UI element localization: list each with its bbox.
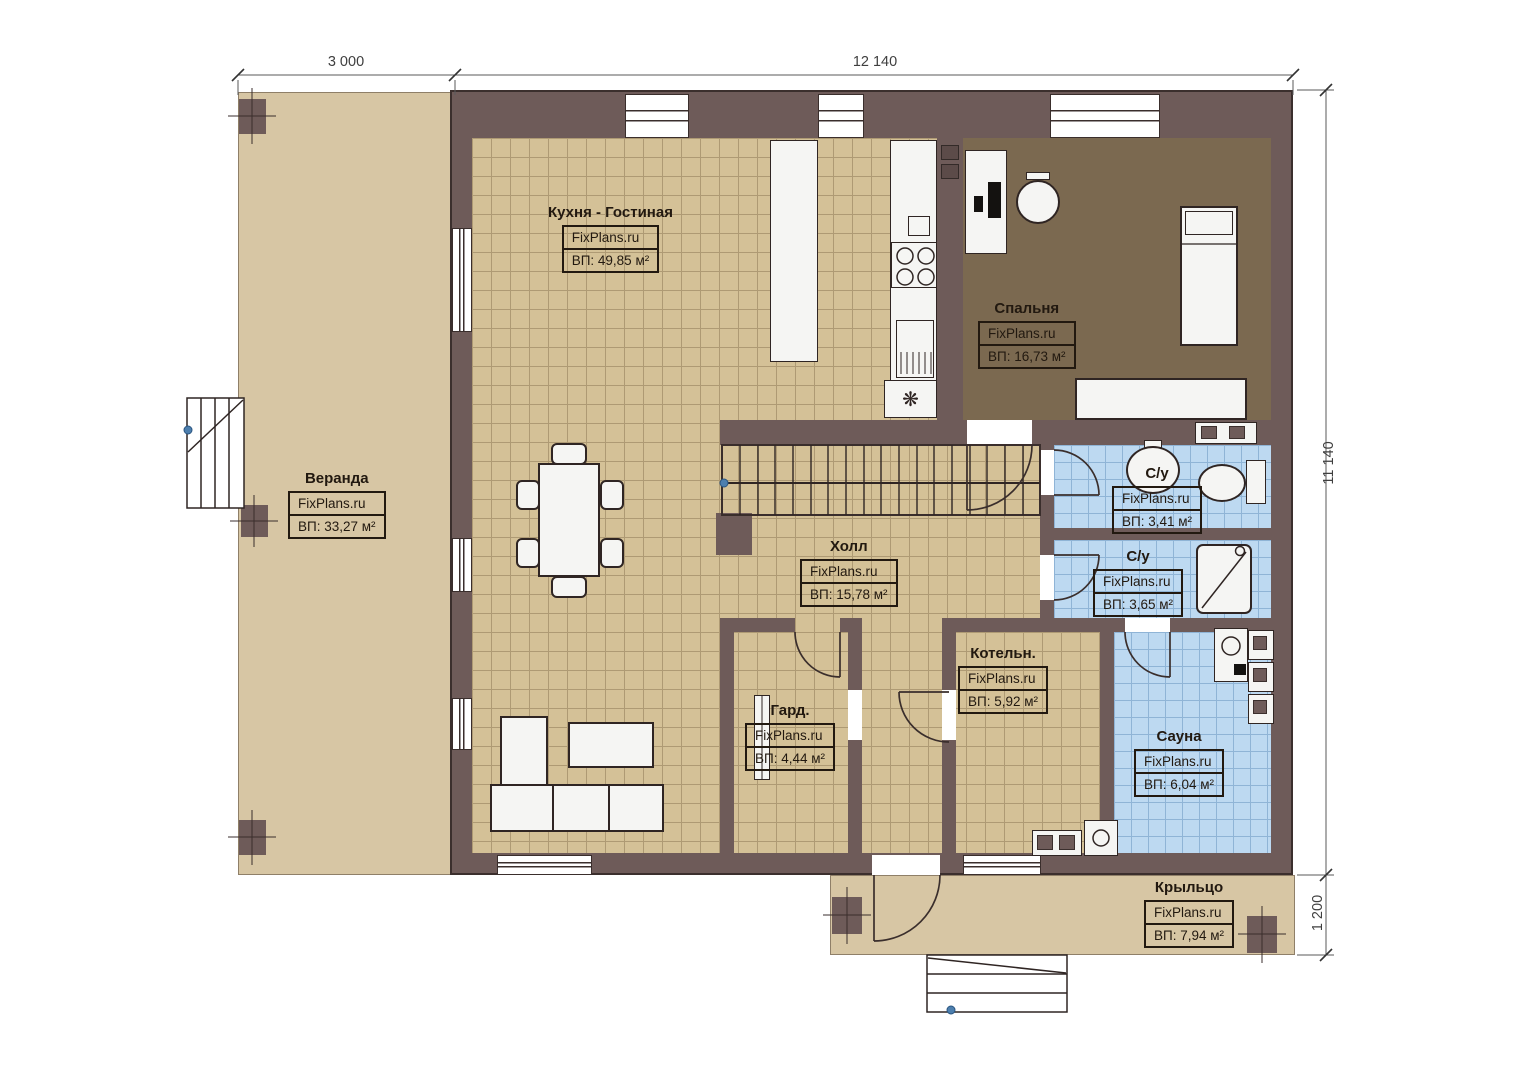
- marker-dot: [947, 1006, 955, 1014]
- sofa-chaise-icon: [500, 716, 548, 786]
- stair-post: [716, 513, 752, 555]
- coffee-table-icon: [568, 722, 654, 768]
- chair-icon: [516, 538, 540, 568]
- fridge-icon: [896, 320, 934, 378]
- room-label-boiler: Котельн. FixPlans.ru ВП: 5,92 м²: [958, 645, 1048, 714]
- door-opening: [967, 420, 1032, 445]
- sauna-stove-firebox: [1234, 664, 1246, 675]
- column: [832, 897, 862, 934]
- window: [963, 855, 1041, 875]
- freezer-icon: ❋: [884, 380, 937, 418]
- marker-dot: [184, 426, 192, 434]
- column: [239, 820, 266, 855]
- room-label-kitchen-living: Кухня - Гостиная FixPlans.ru ВП: 49,85 м…: [548, 204, 673, 273]
- heater-unit: [1248, 630, 1274, 660]
- door-opening: [1125, 618, 1170, 632]
- room-label-bathroom-mid: С/у FixPlans.ru ВП: 3,65 м²: [1093, 548, 1183, 617]
- chair-icon: [516, 480, 540, 510]
- dim-label-veranda-width: 3 000: [300, 54, 392, 70]
- window: [452, 698, 472, 750]
- room-label-veranda: Веранда FixPlans.ru ВП: 33,27 м²: [288, 470, 386, 539]
- window: [1050, 94, 1160, 138]
- floor-plan: ❋: [0, 0, 1528, 1080]
- heater-unit: [1248, 662, 1274, 692]
- room-label-wardrobe: Гард. FixPlans.ru ВП: 4,44 м²: [745, 702, 835, 771]
- freezer-symbol: ❋: [902, 387, 919, 412]
- dim-label-porch-depth: 1 200: [1310, 883, 1326, 943]
- chair-icon: [600, 480, 624, 510]
- window: [625, 94, 689, 138]
- washing-machine-icon: [1084, 820, 1118, 856]
- door-opening: [1040, 555, 1054, 600]
- door-opening: [848, 690, 862, 740]
- chair-icon: [551, 443, 587, 465]
- kitchen-sink-icon: [908, 216, 930, 236]
- keyboard-icon: [974, 196, 983, 212]
- wall-boiler-sauna: [1100, 618, 1114, 853]
- room-label-sauna: Сауна FixPlans.ru ВП: 6,04 м²: [1134, 728, 1224, 797]
- toilet-tank-icon: [1246, 460, 1266, 504]
- room-label-porch: Крыльцо FixPlans.ru ВП: 7,94 м²: [1144, 879, 1234, 948]
- monitor-icon: [988, 182, 1001, 218]
- chair-icon: [551, 576, 587, 598]
- stove-icon: [891, 242, 937, 288]
- toilet-icon: [1198, 464, 1246, 502]
- wall-bedroom-south-left: [720, 420, 967, 445]
- wall-units: [1032, 830, 1082, 856]
- column: [1247, 916, 1277, 953]
- wall-wardrobe-left: [720, 618, 734, 853]
- porch-stairs: [927, 955, 1067, 1014]
- vent-shaft: [941, 145, 959, 160]
- entrance-door-opening: [872, 855, 940, 875]
- veranda-stairs: [184, 398, 244, 508]
- pillow-icon: [1185, 211, 1233, 235]
- chair-icon: [600, 538, 624, 568]
- dim-label-house-width: 12 140: [820, 54, 930, 70]
- column: [241, 505, 268, 537]
- window: [452, 538, 472, 592]
- window: [452, 228, 472, 332]
- vent-shaft: [941, 164, 959, 179]
- heater-unit: [1248, 694, 1274, 724]
- window: [497, 855, 592, 875]
- room-label-bathroom-top: С/у FixPlans.ru ВП: 3,41 м²: [1112, 465, 1202, 534]
- kitchen-island: [770, 140, 818, 362]
- column: [239, 99, 266, 134]
- door-opening: [942, 690, 956, 740]
- wall-cabinet: [1195, 422, 1257, 444]
- shower-icon: [1196, 544, 1252, 614]
- room-label-hall: Холл FixPlans.ru ВП: 15,78 м²: [800, 538, 898, 607]
- chair-back-icon: [1026, 172, 1050, 180]
- dresser-icon: [1075, 378, 1247, 420]
- wall-kitchen-bedroom: [937, 138, 963, 420]
- sofa-icon: [490, 784, 664, 832]
- room-label-bedroom: Спальня FixPlans.ru ВП: 16,73 м²: [978, 300, 1076, 369]
- dining-table-icon: [538, 463, 600, 577]
- door-opening: [1040, 450, 1054, 495]
- office-chair-icon: [1016, 180, 1060, 224]
- window: [818, 94, 864, 138]
- dim-label-house-depth: 11 140: [1321, 428, 1337, 498]
